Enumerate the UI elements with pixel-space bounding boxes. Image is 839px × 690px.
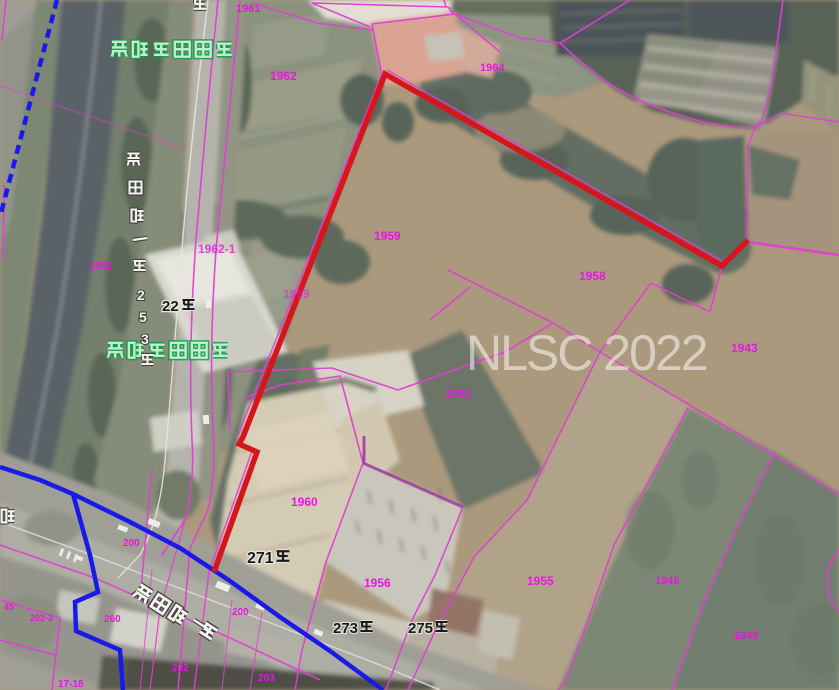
svg-text:1961: 1961 xyxy=(446,388,470,400)
svg-text:1962-1: 1962-1 xyxy=(198,242,236,256)
svg-text:200: 200 xyxy=(123,538,140,549)
svg-text:22: 22 xyxy=(162,298,179,315)
svg-text:1948: 1948 xyxy=(655,575,679,587)
svg-text:1981: 1981 xyxy=(90,261,113,272)
svg-text:3: 3 xyxy=(141,331,149,347)
svg-text:1961: 1961 xyxy=(236,3,260,15)
svg-text:1956: 1956 xyxy=(364,576,391,590)
svg-text:275: 275 xyxy=(408,620,433,637)
svg-text:202: 202 xyxy=(172,663,189,674)
svg-text:203: 203 xyxy=(258,673,275,684)
svg-text:273: 273 xyxy=(333,620,358,637)
svg-text:1960: 1960 xyxy=(291,495,318,509)
svg-text:200: 200 xyxy=(232,607,249,618)
svg-text:1959: 1959 xyxy=(283,287,310,301)
svg-text:45: 45 xyxy=(4,602,14,612)
svg-text:1964: 1964 xyxy=(480,62,505,74)
svg-text:1962: 1962 xyxy=(270,69,297,83)
svg-text:1959: 1959 xyxy=(374,229,401,243)
svg-text:271: 271 xyxy=(247,550,274,567)
svg-text:202-3: 202-3 xyxy=(30,613,53,623)
svg-text:17-18: 17-18 xyxy=(58,679,84,690)
svg-text:1943: 1943 xyxy=(731,341,758,355)
svg-text:1955: 1955 xyxy=(527,574,554,588)
svg-text:2: 2 xyxy=(137,287,145,303)
svg-text:1949: 1949 xyxy=(734,630,758,642)
svg-text:260: 260 xyxy=(104,614,121,625)
svg-text:1958: 1958 xyxy=(579,269,606,283)
svg-text:NLSC 2022: NLSC 2022 xyxy=(466,325,707,381)
svg-text:5: 5 xyxy=(139,309,147,325)
